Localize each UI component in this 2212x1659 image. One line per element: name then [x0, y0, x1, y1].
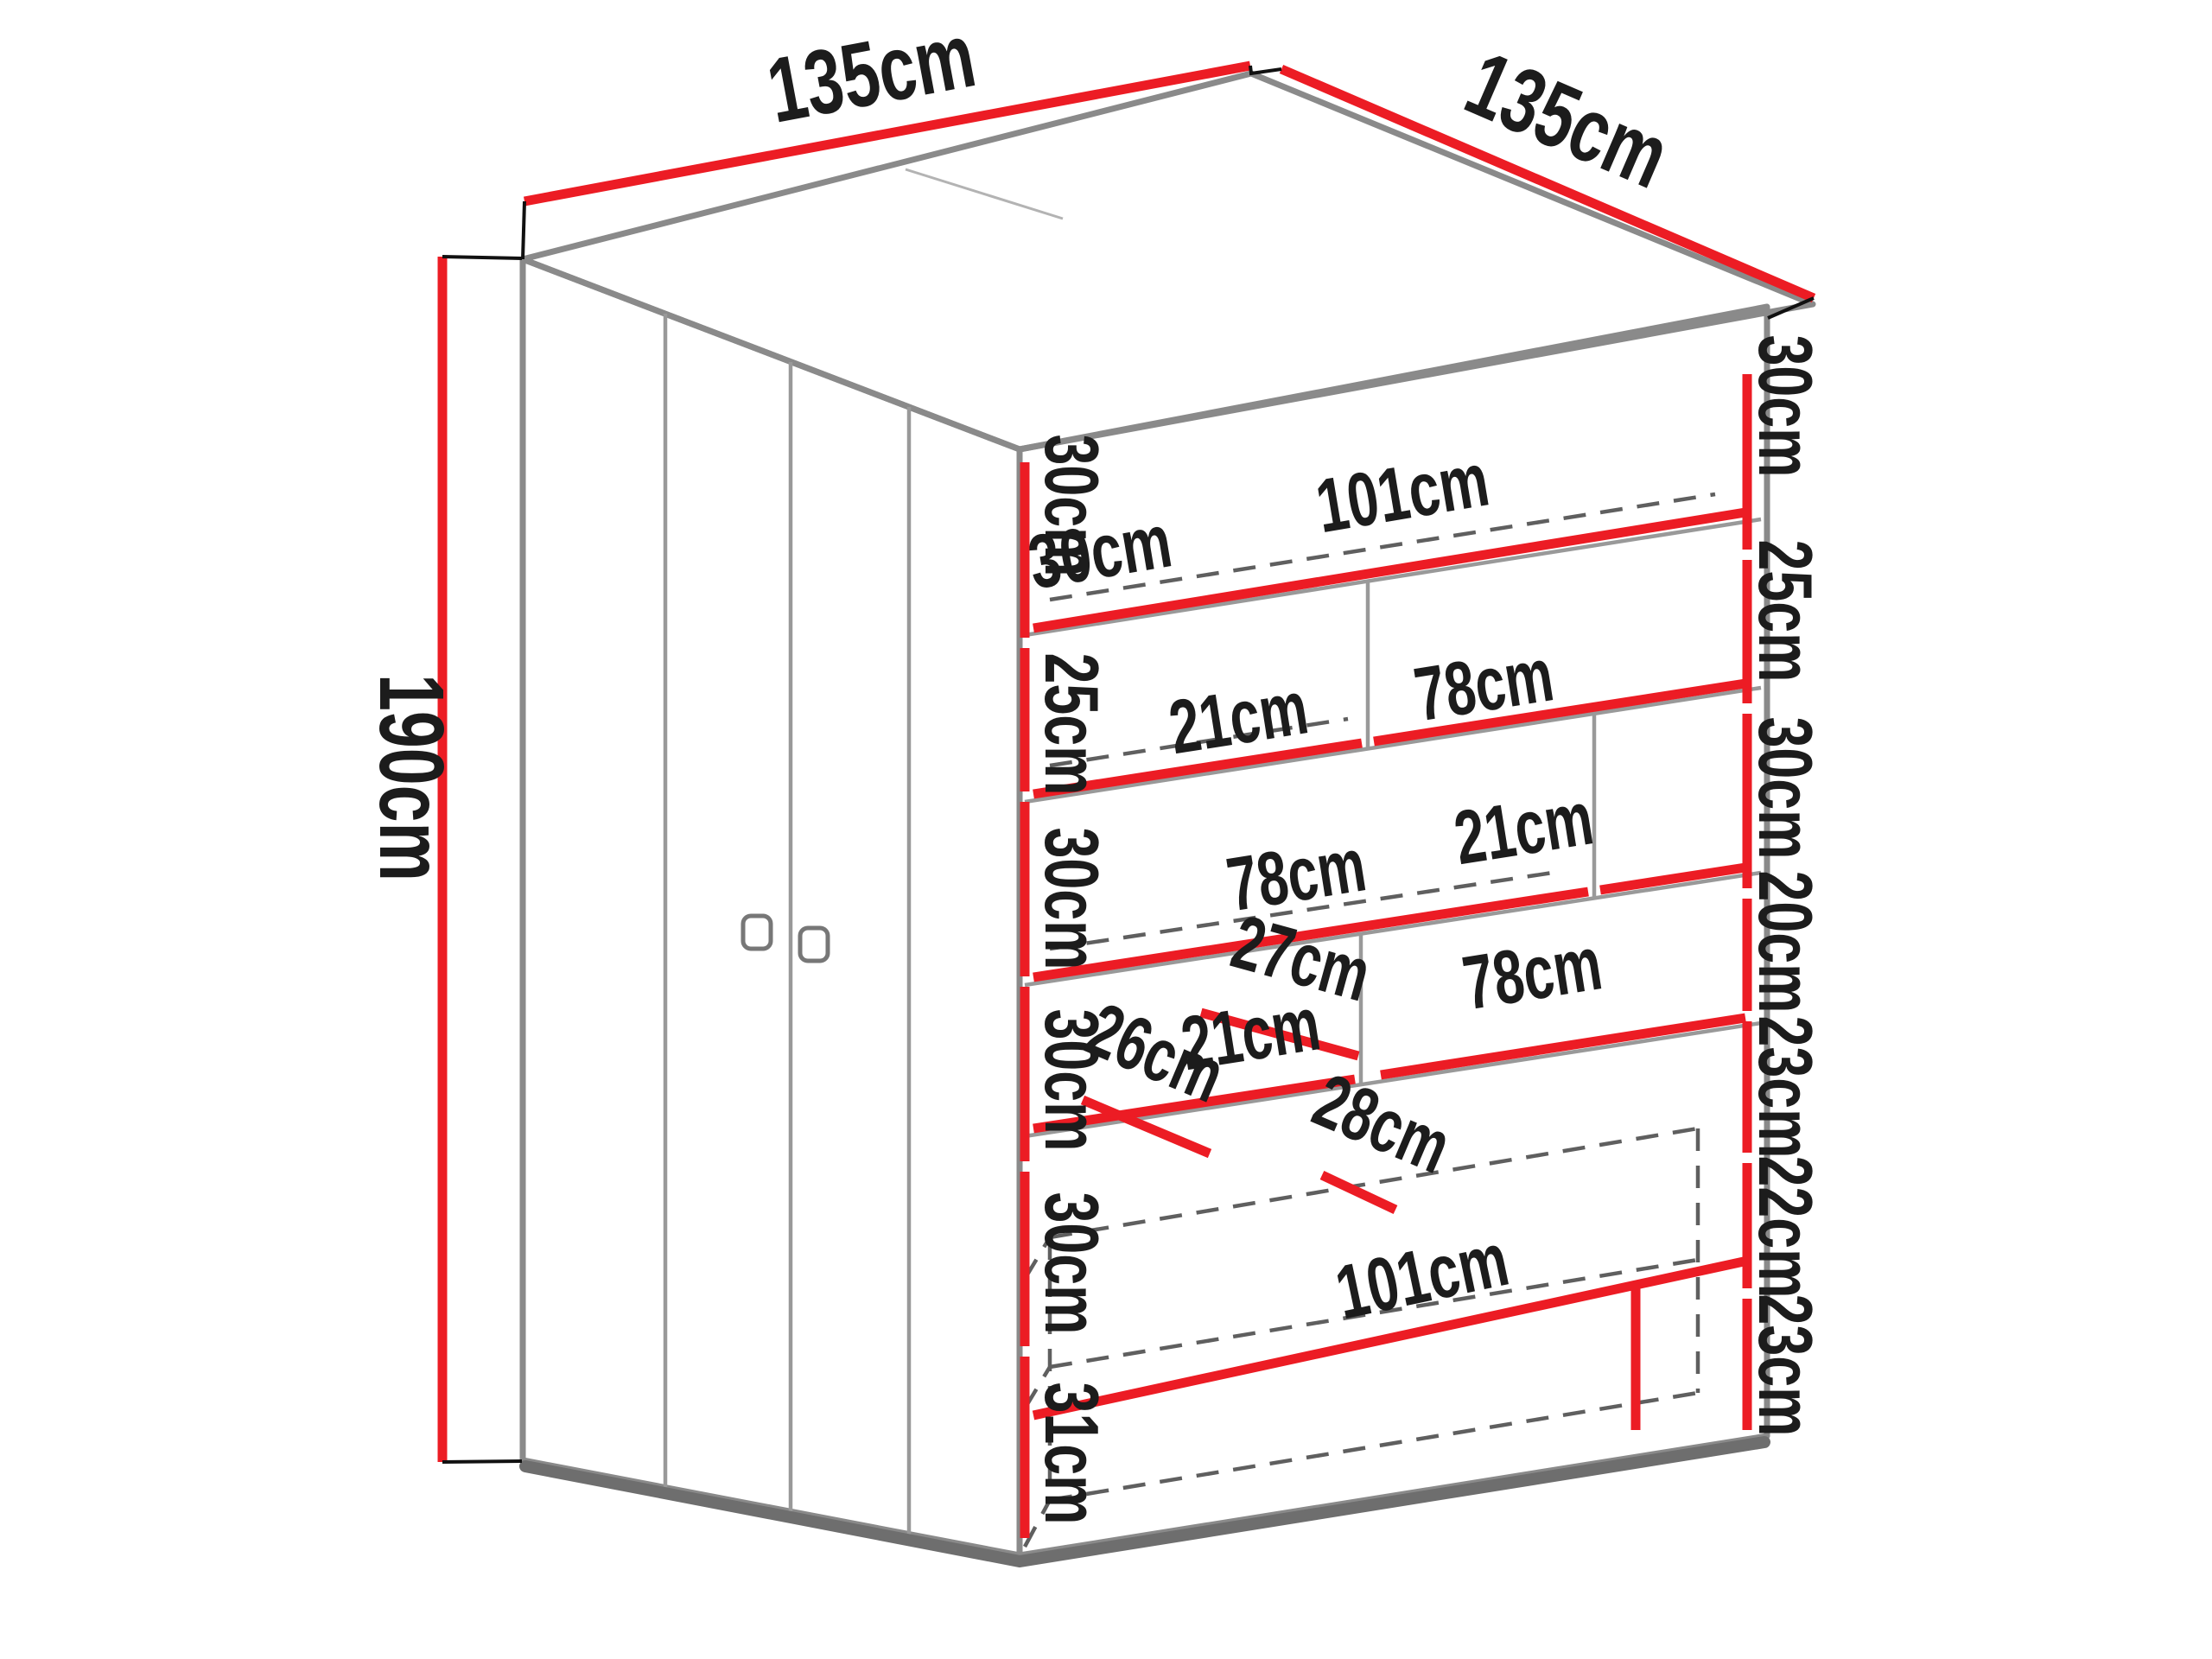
label-height: 190cm [360, 674, 462, 881]
top-face-seam [906, 169, 1063, 219]
wardrobe-dimension-diagram: 135cm 135cm 190cm 30cm 25cm 30cm 30cm 30… [0, 0, 2212, 1659]
door-handle-right [800, 928, 828, 961]
label-right-h7: 23cm [1743, 1294, 1828, 1437]
label-right-h2: 25cm [1743, 540, 1828, 683]
label-right-h6: 22cm [1743, 1156, 1828, 1299]
label-right-h5: 23cm [1743, 1016, 1828, 1159]
label-left-h6: 31cm [1029, 1382, 1115, 1525]
tick-apex [1250, 66, 1281, 73]
tick-width-left [523, 201, 524, 259]
diagram-stage: 135cm 135cm 190cm 30cm 25cm 30cm 30cm 30… [0, 0, 2212, 1659]
drawer-2-bottom-dashed [1050, 1393, 1698, 1500]
tick-height-top [442, 257, 522, 258]
cabinet-structure [523, 73, 1813, 1561]
label-left-h3: 30cm [1029, 828, 1115, 970]
tick-height-bottom [442, 1461, 522, 1462]
dimension-lines [442, 66, 1814, 1538]
shelf-3-edge [1025, 873, 1761, 985]
label-right-h1: 30cm [1743, 335, 1828, 478]
bottom-shadow [525, 1442, 1764, 1561]
label-right-h3: 30cm [1743, 717, 1828, 860]
left-face-doors [523, 259, 1020, 1555]
label-left-h2: 25cm [1029, 653, 1115, 796]
label-right-h4: 20cm [1743, 871, 1828, 1014]
door-handle-left [743, 916, 771, 949]
label-left-h5: 30cm [1029, 1192, 1115, 1335]
label-shelf3-right: 21cm [1448, 774, 1599, 880]
dim-shelf4-right [1381, 1018, 1745, 1075]
shelf-2-edge [1025, 688, 1761, 802]
dimension-labels: 135cm 135cm 190cm 30cm 25cm 30cm 30cm 30… [360, 4, 1828, 1525]
label-drawer-depth: 28cm [1302, 1057, 1463, 1190]
label-shelf4-right: 78cm [1457, 919, 1607, 1026]
label-width-right: 135cm [1452, 32, 1683, 207]
